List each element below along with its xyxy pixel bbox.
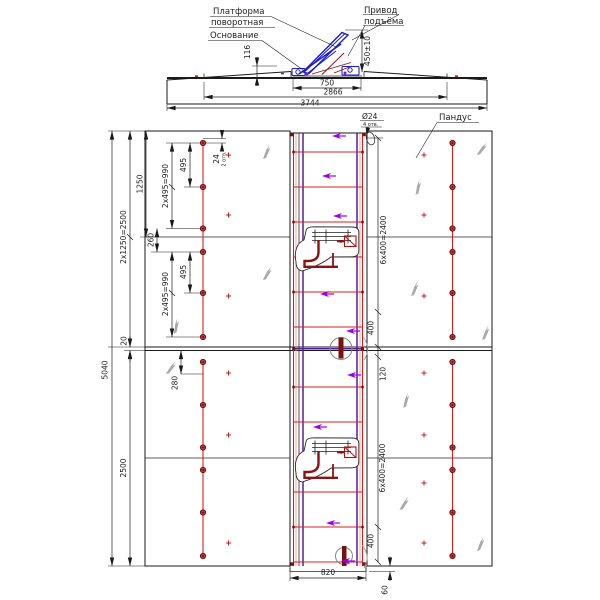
dim-2400-bot: 6x400=2400 bbox=[378, 443, 387, 492]
plan-view: 5040 2x1250=2500 2500 20 1250 280 2x495=… bbox=[101, 112, 493, 595]
dim-upper-half: 2x1250=2500 bbox=[119, 210, 128, 264]
dim-495-top: 495 bbox=[179, 158, 188, 173]
dim-495-mid: 495 bbox=[179, 265, 188, 280]
side-dimensions: 116 450±10 750 2866 3744 bbox=[167, 30, 487, 111]
label-platform-line1: Платформа bbox=[213, 7, 264, 17]
dim-260: 260 bbox=[147, 233, 156, 248]
callout-hole-dia: Ø24 bbox=[362, 112, 378, 121]
cad-drawing: Платформа поворотная Основание Привод по… bbox=[0, 0, 600, 600]
plan-mechanism-upper bbox=[295, 227, 358, 271]
dim-2866: 2866 bbox=[323, 88, 342, 97]
dim-60: 60 bbox=[381, 585, 390, 595]
dim-2400-top: 6x400=2400 bbox=[379, 215, 388, 264]
dim-750: 750 bbox=[320, 79, 335, 88]
channel-rungs bbox=[294, 152, 363, 562]
label-base: Основание bbox=[210, 31, 259, 41]
dim-990-mid: 2x495=990 bbox=[161, 272, 170, 316]
dim-24-note: 2 отв. bbox=[222, 151, 228, 167]
dim-1250: 1250 bbox=[136, 174, 145, 193]
plan-panels bbox=[145, 131, 492, 572]
dim-120: 120 bbox=[379, 367, 388, 382]
center-channel bbox=[290, 131, 367, 566]
dim-20: 20 bbox=[120, 336, 129, 346]
dim-2500: 2500 bbox=[119, 458, 128, 477]
dim-3744: 3744 bbox=[300, 99, 319, 108]
dim-5040: 5040 bbox=[101, 360, 110, 379]
side-labels: Платформа поворотная Основание Привод по… bbox=[208, 6, 404, 70]
dim-400-bot: 400 bbox=[367, 534, 376, 549]
plan-dims-left: 5040 2x1250=2500 2500 20 1250 280 bbox=[101, 131, 204, 566]
plan-dims-bolt-groups: 2x495=990 495 260 2x495=990 495 24 2 отв… bbox=[147, 130, 228, 337]
label-ramp: Пандус bbox=[439, 113, 472, 123]
dim-450: 450±10 bbox=[363, 36, 372, 66]
label-platform-line2: поворотная bbox=[211, 18, 263, 28]
drawing-sheet: Платформа поворотная Основание Привод по… bbox=[0, 0, 600, 600]
dim-400-top: 400 bbox=[367, 321, 376, 336]
side-view: Платформа поворотная Основание Привод по… bbox=[167, 6, 487, 111]
dim-116: 116 bbox=[243, 45, 252, 60]
dim-990-top: 2x495=990 bbox=[161, 164, 170, 208]
surface-leaves bbox=[166, 141, 490, 551]
dim-24: 24 bbox=[212, 154, 221, 164]
dim-280: 280 bbox=[171, 376, 180, 391]
dim-820: 820 bbox=[321, 568, 336, 577]
plan-mechanism-lower bbox=[295, 438, 358, 482]
